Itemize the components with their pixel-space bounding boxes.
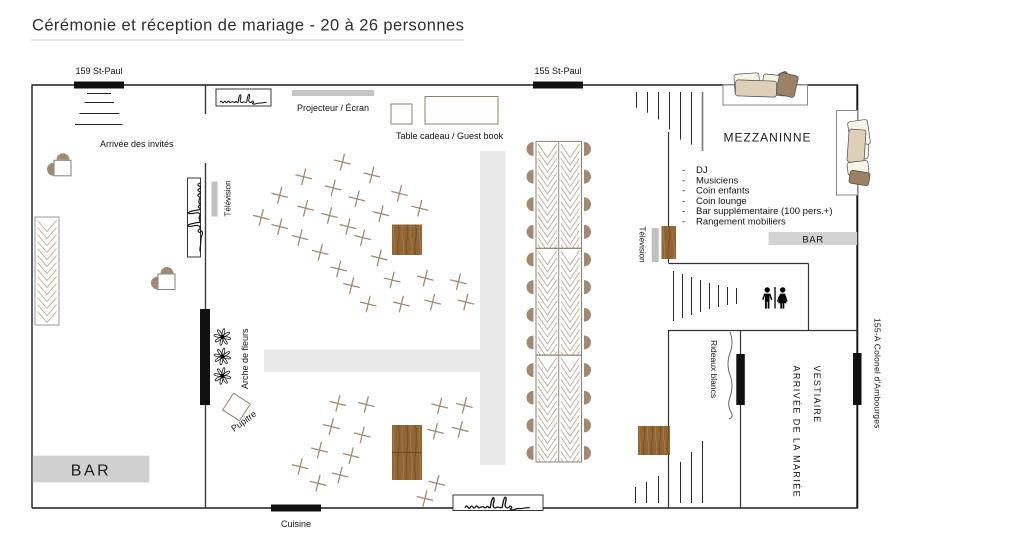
svg-text:BAR: BAR bbox=[71, 463, 111, 480]
svg-text:Cérémonie et réception de mari: Cérémonie et réception de mariage - 20 à… bbox=[32, 16, 464, 34]
svg-text:MEZZANINNE: MEZZANINNE bbox=[724, 131, 812, 145]
svg-text:Cuisine: Cuisine bbox=[281, 519, 311, 529]
svg-text:155-A Colonel d'Ambourges: 155-A Colonel d'Ambourges bbox=[873, 318, 883, 429]
svg-text:159 St-Paul: 159 St-Paul bbox=[75, 66, 122, 76]
svg-text:Rangement mobiliers: Rangement mobiliers bbox=[696, 217, 786, 228]
svg-text:Projecteur / Écran: Projecteur / Écran bbox=[297, 103, 369, 113]
svg-text:Télévision: Télévision bbox=[224, 180, 233, 216]
svg-text:Télévision: Télévision bbox=[638, 227, 647, 263]
svg-text:Arche de fleurs: Arche de fleurs bbox=[240, 328, 250, 389]
svg-text:Arrivée des invités: Arrivée des invités bbox=[100, 139, 174, 149]
svg-text:-: - bbox=[682, 217, 685, 228]
svg-text:BAR: BAR bbox=[802, 235, 823, 246]
svg-text:VESTIAIRE: VESTIAIRE bbox=[812, 366, 822, 424]
svg-text:Rideaux blancs: Rideaux blancs bbox=[709, 340, 719, 398]
svg-text:ARRIVÉE DE LA MARIÉE: ARRIVÉE DE LA MARIÉE bbox=[792, 366, 802, 499]
svg-text:Table cadeau / Guest book: Table cadeau / Guest book bbox=[396, 131, 504, 141]
svg-text:155 St-Paul: 155 St-Paul bbox=[534, 66, 581, 76]
